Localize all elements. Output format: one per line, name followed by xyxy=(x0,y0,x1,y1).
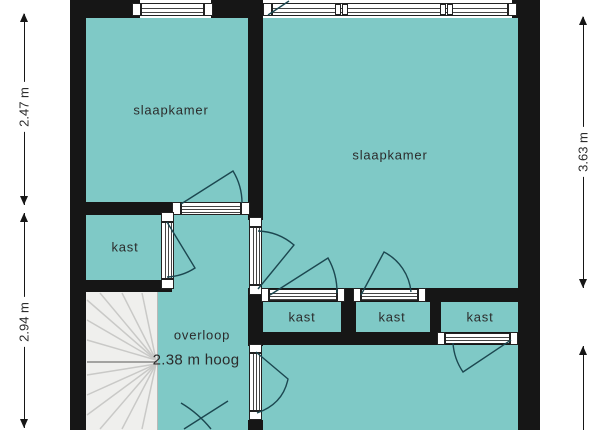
door-jamb xyxy=(418,288,426,302)
window-jamb xyxy=(263,3,272,16)
door-jamb xyxy=(353,288,361,302)
arrow-up-icon xyxy=(579,16,587,25)
door xyxy=(161,222,174,279)
arrow-up-icon xyxy=(20,13,28,22)
dimension-line xyxy=(583,346,584,430)
wall xyxy=(248,14,263,220)
floor-plan: slaapkamer slaapkamer kast kast kast kas… xyxy=(0,0,608,430)
wall xyxy=(70,202,174,215)
door xyxy=(249,227,262,285)
door-jamb xyxy=(261,288,269,302)
door-jamb xyxy=(161,279,174,289)
door xyxy=(181,202,241,215)
room-label-bedroom-right: slaapkamer xyxy=(352,148,427,163)
wall xyxy=(70,0,86,430)
arrow-up-icon xyxy=(20,213,28,222)
window xyxy=(141,3,204,16)
window-jamb xyxy=(132,3,141,16)
window-mullion xyxy=(440,4,446,15)
door xyxy=(445,333,510,344)
door-jamb xyxy=(161,212,174,222)
wall xyxy=(518,0,540,430)
arrow-down-icon xyxy=(579,279,587,288)
arrow-up-icon xyxy=(579,346,587,355)
window-mullion xyxy=(447,4,453,15)
room-label-landing: overloop xyxy=(174,328,230,343)
dimension-label-right-upper: 3.63 m xyxy=(576,127,591,177)
door xyxy=(249,353,262,411)
room-label-bedroom-left: slaapkamer xyxy=(133,103,208,118)
arrow-down-icon xyxy=(20,419,28,428)
door-jamb xyxy=(241,202,250,215)
door-jamb xyxy=(437,332,445,345)
room-label-closet-c: kast xyxy=(466,310,493,325)
wall xyxy=(248,420,263,430)
window-jamb xyxy=(204,3,213,16)
room-note-ceiling-height: 2.38 m hoog xyxy=(153,352,240,369)
window-jamb xyxy=(508,3,517,16)
window xyxy=(272,3,508,16)
dimension-label-left-lower: 2.94 m xyxy=(17,297,32,347)
dimension-label-left-upper: 2.47 m xyxy=(17,82,32,132)
door-jamb xyxy=(510,332,518,345)
door-jamb xyxy=(249,217,262,227)
window-mullion xyxy=(342,4,348,15)
window-mullion xyxy=(335,4,341,15)
stairs xyxy=(86,292,158,430)
wall xyxy=(70,280,172,292)
room-label-closet-b: kast xyxy=(378,310,405,325)
door-jamb xyxy=(337,288,345,302)
door xyxy=(269,289,337,301)
door xyxy=(361,289,418,301)
arrow-down-icon xyxy=(20,196,28,205)
door-jamb xyxy=(249,411,262,420)
room-label-closet-left: kast xyxy=(111,240,138,255)
room-label-closet-a: kast xyxy=(288,310,315,325)
door-jamb xyxy=(249,344,262,353)
